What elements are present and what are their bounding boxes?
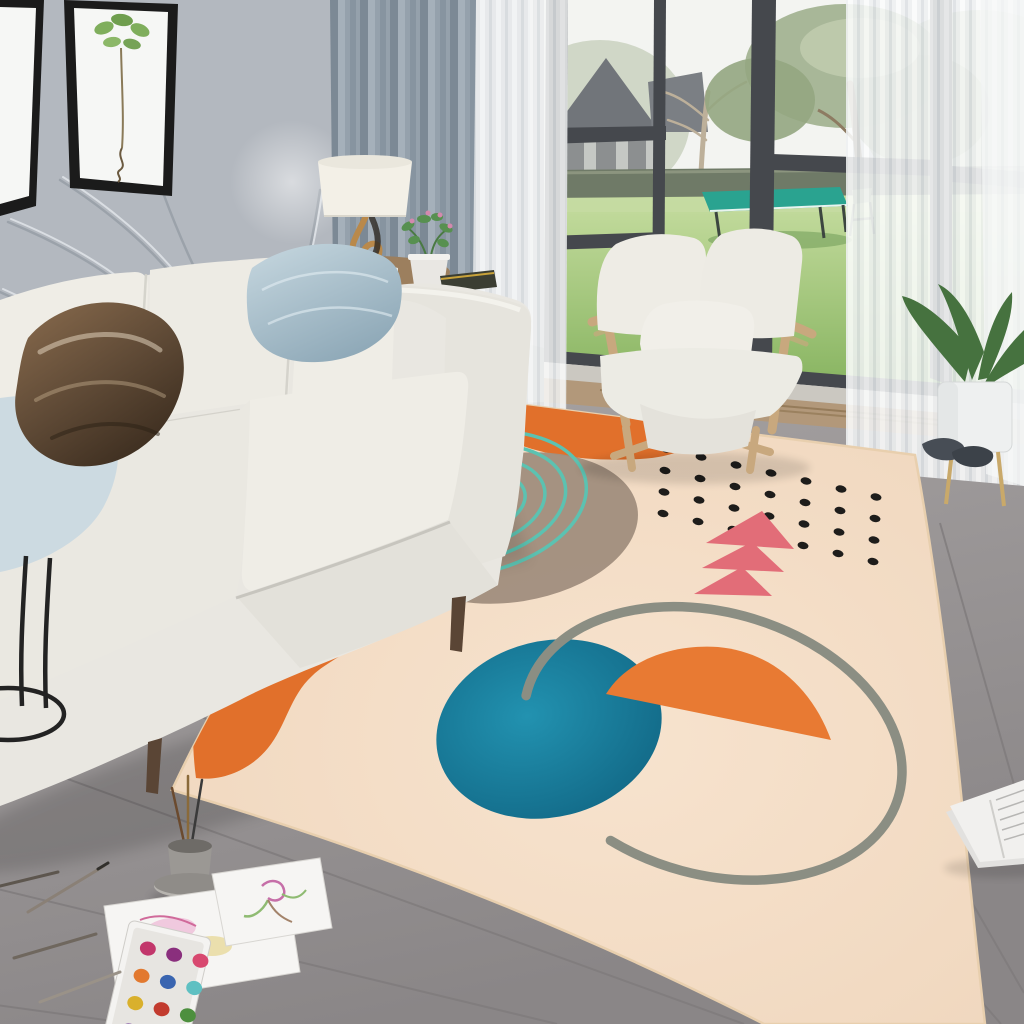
- picture-frame-botanical: [64, 0, 178, 196]
- living-room-photo: Living room photograph: white sofa, gard…: [0, 0, 1024, 1024]
- scene-canvas: [0, 0, 1024, 1024]
- lamp-shade: [318, 162, 412, 216]
